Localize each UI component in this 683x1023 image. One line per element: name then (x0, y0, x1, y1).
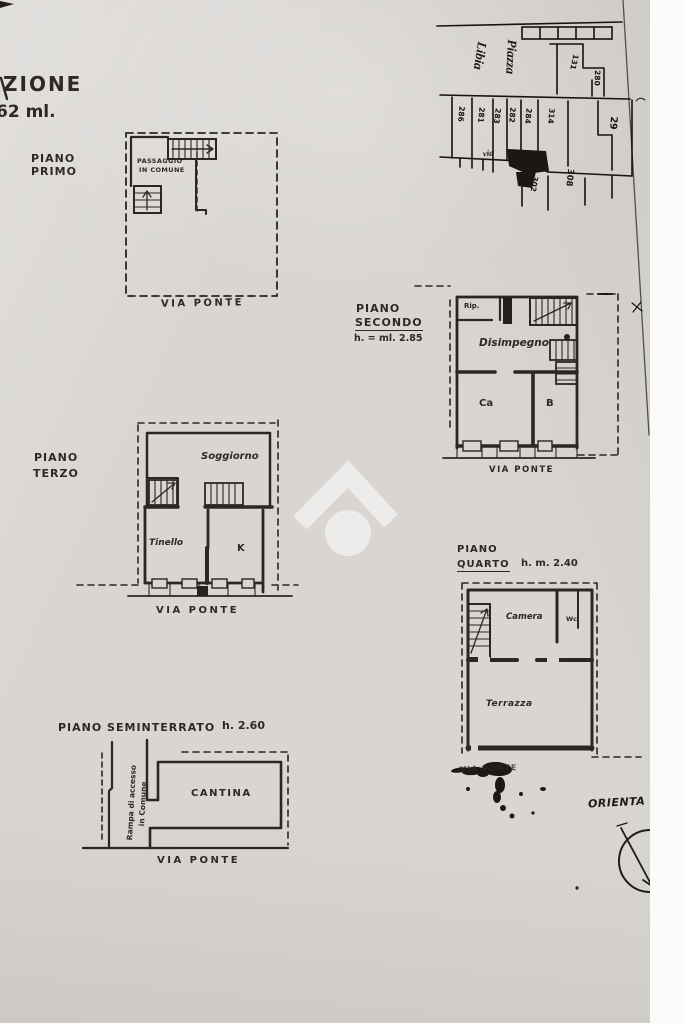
room-label-cantina: CANTINA (191, 789, 252, 800)
room-label-wc: Wc. (566, 616, 580, 623)
plan-terzo-title-line1: PIANO (34, 452, 78, 464)
room-label-soggiorno: Soggiorno (201, 452, 259, 463)
plan-quarto-title-line2: QUARTO (457, 560, 510, 571)
scanned-floorplan-sheet: ZIONE 62 ml. PIANO PRIMO PASSAGGIO IN CO… (0, 0, 683, 1023)
room-label-terrazza: Terrazza (486, 700, 533, 709)
plan-quarto-title-underlined: QUARTO (457, 559, 510, 572)
plan-seminterrato-height-note: h. 2.60 (222, 720, 265, 732)
room-label-k: K (237, 544, 245, 555)
street-label-via-ponte-seminterrato: VIA PONTE (157, 856, 240, 867)
plan-quarto-title-line1: PIANO (457, 545, 498, 556)
plan-quarto-height-note: h. m. 2.40 (521, 559, 578, 570)
scan-white-margin (650, 0, 683, 1023)
orientation-label: ORIENTA (588, 796, 646, 811)
street-label-via-ponte-terzo: VIA PONTE (156, 606, 239, 617)
room-label-tinello: Tinello (149, 539, 183, 548)
room-label-camera: Camera (506, 613, 543, 622)
plan-terzo-title-line2: TERZO (33, 468, 79, 480)
plan-seminterrato-title: PIANO SEMINTERRATO (58, 722, 215, 734)
watermark (0, 0, 683, 1023)
